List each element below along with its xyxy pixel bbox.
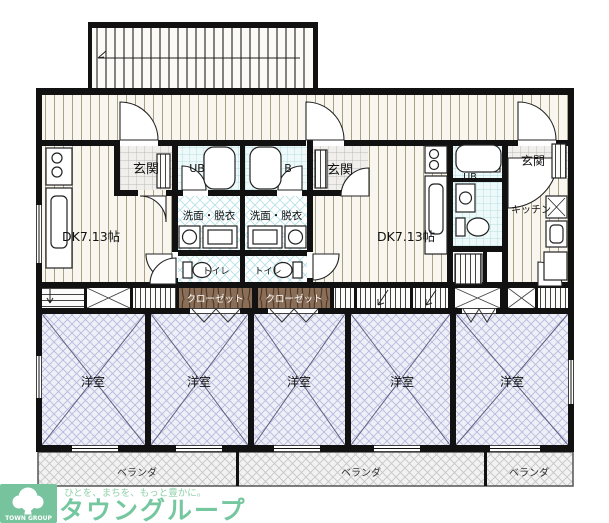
bathtub-icon — [456, 145, 501, 172]
toilet-icon — [456, 218, 489, 236]
entrance1-label: 玄関 — [133, 162, 159, 177]
shoe-cabinet — [315, 150, 327, 188]
western-room2-label: 洋室 — [187, 374, 211, 389]
cabinet-hatch — [133, 288, 176, 308]
kitchen-label: キッチン — [511, 204, 551, 216]
window — [37, 205, 41, 263]
veranda1-label: ベランダ — [117, 466, 157, 479]
washer-icon — [179, 226, 200, 248]
kitchen-cabinet — [544, 252, 567, 280]
bathtub-icon — [250, 147, 281, 189]
logo-caption: TOWN GROUP — [5, 515, 52, 522]
window — [274, 446, 320, 451]
western-room5-label: 洋室 — [500, 374, 524, 389]
window — [37, 356, 41, 398]
floor-plan-page: 玄関 玄関 玄関 UB B UB 洗面・脱衣 洗面・脱衣 トイレ トイレ DK7… — [0, 0, 609, 523]
washbasin-icon — [456, 184, 475, 212]
ub2-label: B — [284, 162, 292, 175]
veranda3-label: ベランダ — [509, 466, 549, 479]
washroom1-label: 洗面・脱衣 — [183, 209, 236, 222]
brand-name: タウングループ — [59, 496, 247, 523]
window — [176, 446, 222, 451]
entrance3-label: 玄関 — [521, 153, 545, 168]
inner-stair — [42, 288, 84, 308]
stove-icon — [425, 146, 447, 173]
western-room1-label: 洋室 — [81, 374, 105, 389]
vanity-icon — [203, 226, 237, 248]
window — [569, 360, 573, 404]
step-cell — [357, 288, 410, 308]
small-closet — [455, 254, 482, 284]
ub3-label: UB — [463, 172, 476, 183]
branding: TOWN GROUP ひとを、まちを、もっと豊かに。 タウングループ — [0, 484, 247, 523]
exterior-staircase — [88, 22, 318, 92]
entrance2-label: 玄関 — [327, 163, 353, 178]
washroom2-label: 洗面・脱衣 — [250, 209, 303, 222]
bathtub-icon — [204, 147, 235, 189]
stove-icon — [46, 148, 72, 185]
toilet2-label: トイレ — [254, 267, 281, 277]
cabinet-hatch — [334, 288, 354, 308]
vanity-icon — [248, 226, 282, 248]
window — [72, 446, 118, 451]
kitchen-sink-icon — [46, 188, 72, 268]
kitchen-counter-icon — [546, 221, 567, 247]
toilet1-label: トイレ — [202, 267, 229, 277]
window — [374, 446, 420, 451]
shoe-cabinet — [552, 144, 566, 178]
dk2-label: DK7.13帖 — [377, 229, 435, 244]
washer-icon — [285, 226, 306, 248]
ub1-label: UB — [189, 162, 205, 175]
western-room4-label: 洋室 — [390, 374, 414, 389]
cabinet-hatch — [538, 288, 568, 308]
dk1-label: DK7.13帖 — [62, 229, 120, 244]
western-room3-label: 洋室 — [287, 374, 311, 389]
floor-plan-drawing: 玄関 玄関 玄関 UB B UB 洗面・脱衣 洗面・脱衣 トイレ トイレ DK7… — [0, 0, 609, 523]
window — [490, 446, 540, 451]
closet2-label: クローゼット — [265, 293, 322, 305]
veranda2-label: ベランダ — [341, 466, 381, 479]
closet1-label: クローゼット — [186, 293, 243, 305]
